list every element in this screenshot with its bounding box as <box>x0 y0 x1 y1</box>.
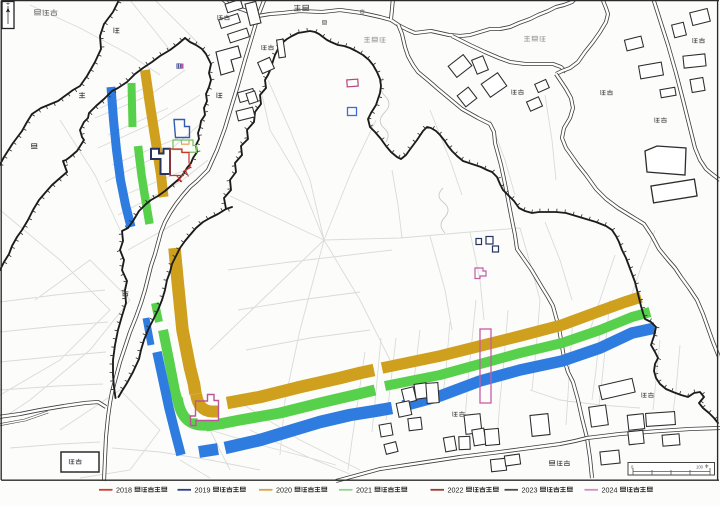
svg-text:2024: 2024 <box>602 486 618 495</box>
svg-text:2022: 2022 <box>448 486 464 495</box>
svg-text:2023: 2023 <box>522 486 538 495</box>
svg-text:100: 100 <box>696 465 704 470</box>
svg-text:2021: 2021 <box>356 486 372 495</box>
svg-text:2018: 2018 <box>116 486 132 495</box>
svg-text:2020: 2020 <box>276 486 292 495</box>
svg-text:2019: 2019 <box>195 486 211 495</box>
